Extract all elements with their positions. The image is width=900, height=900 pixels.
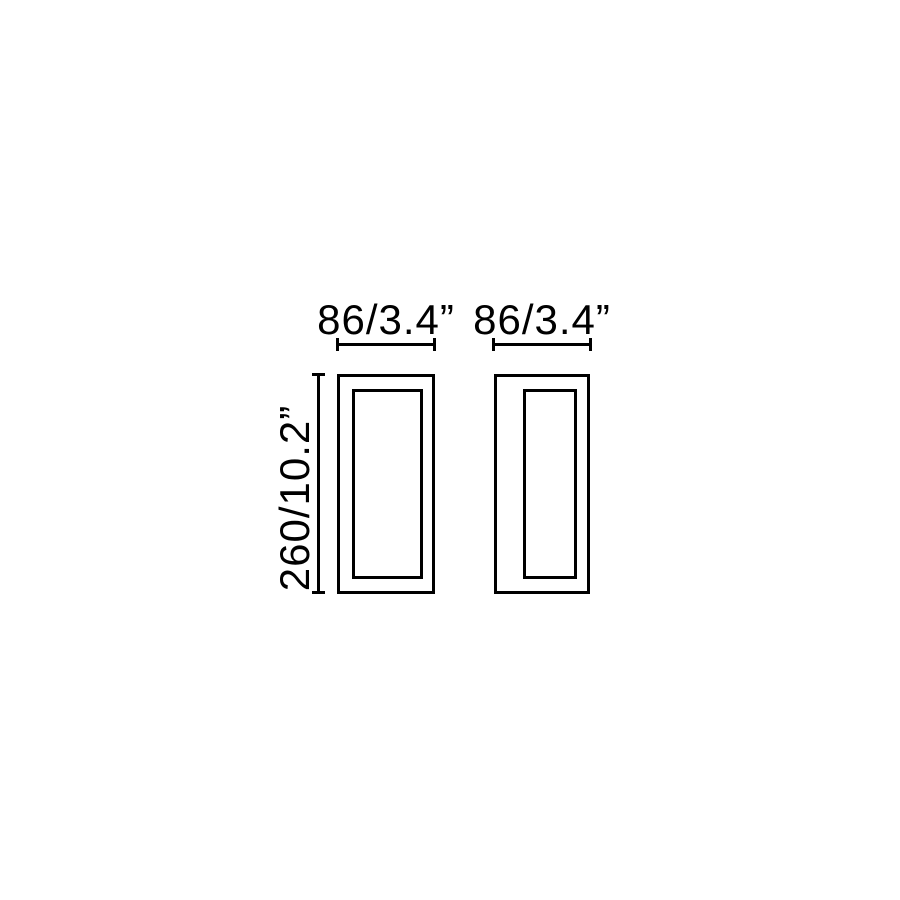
side-view-inner-rect [523, 389, 577, 579]
height-label: 260/10.2” [274, 405, 316, 591]
dimension-diagram: 86/3.4” 86/3.4” 260/10.2” [0, 0, 900, 900]
front-width-label: 86/3.4” [296, 299, 476, 341]
side-width-label: 86/3.4” [452, 299, 632, 341]
front-view-inner-rect [352, 389, 423, 579]
